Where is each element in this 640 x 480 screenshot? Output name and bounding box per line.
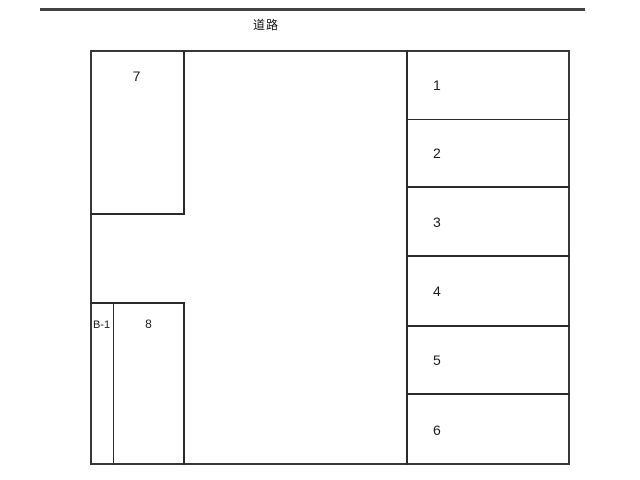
parking-space-4: 4: [408, 257, 570, 327]
parking-space-1: 1: [408, 50, 570, 120]
space-3-label: 3: [433, 214, 441, 230]
right-spaces-column: 1 2 3 4 5 6: [406, 50, 570, 465]
space-6-label: 6: [433, 422, 441, 438]
road-edge-line: [40, 8, 585, 11]
parking-space-8: 8: [114, 304, 183, 465]
parking-space-6: 6: [408, 395, 570, 465]
bike-space-b1: B-1: [90, 304, 114, 465]
space-5-label: 5: [433, 352, 441, 368]
space-4-label: 4: [433, 283, 441, 299]
space-2-label: 2: [433, 145, 441, 161]
space-b1-label: B-1: [90, 319, 113, 331]
parking-space-2: 2: [408, 120, 570, 188]
parking-space-3: 3: [408, 188, 570, 257]
parking-space-7: 7: [90, 50, 185, 215]
space-1-label: 1: [433, 77, 441, 93]
space-7-label: 7: [90, 69, 183, 84]
space-8-label: 8: [114, 318, 183, 331]
bottom-left-spaces: B-1 8: [90, 302, 185, 465]
road-label: 道路: [226, 19, 306, 32]
parking-space-5: 5: [408, 327, 570, 395]
parking-lot-diagram: 道路 7 B-1 8 1 2 3 4 5 6: [0, 0, 640, 480]
